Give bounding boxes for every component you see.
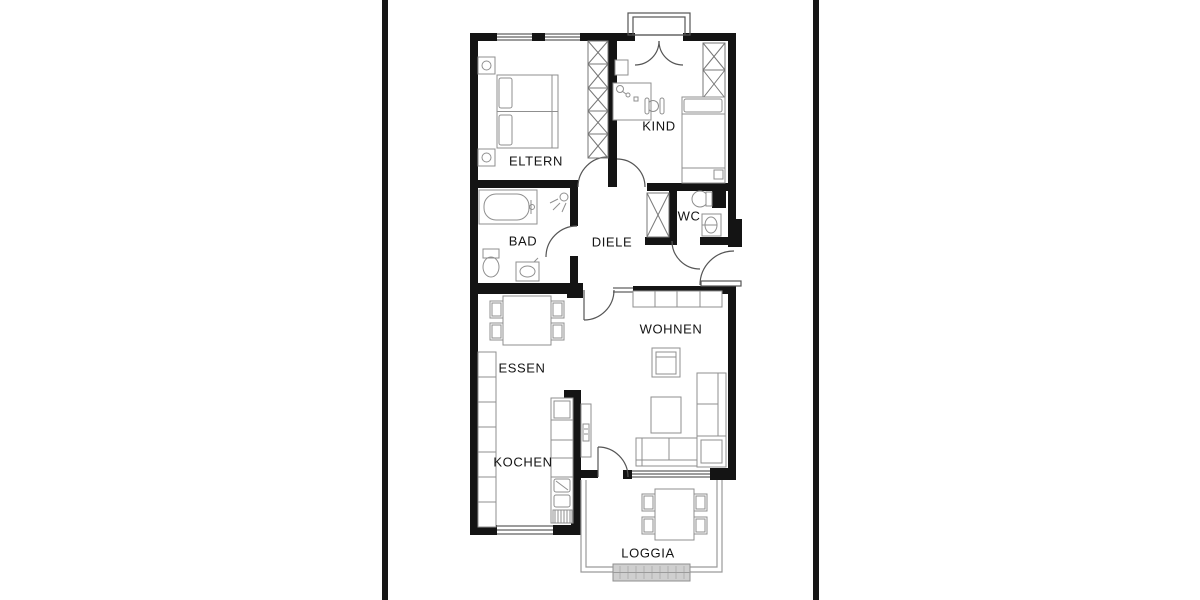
window-kochen [497,526,553,534]
shower-head-symbol [550,193,568,212]
sideboard [633,291,722,307]
room-label-diele: DIELE [592,235,633,250]
bathtub [479,190,537,224]
wall-glass-panel-diele [613,288,633,292]
sink-wc [702,214,721,236]
door-arc-wc [672,241,700,269]
room-label-kind: KIND [642,119,675,134]
entrance-niche-inner [633,17,685,35]
room-label-loggia: LOGGIA [621,546,674,561]
loggia-doormat [613,564,690,581]
nightstand-top [478,57,495,74]
room-label-wc: WC [678,209,701,224]
room-label-essen: ESSEN [498,361,545,376]
tv-cabinet [652,348,680,377]
door-arc-kind [617,159,645,187]
sink-bad [516,258,539,281]
wardrobe-kind [703,43,725,98]
entrance-niche-outer [628,13,690,35]
room-label-wohnen: WOHNEN [640,322,703,337]
room-label-eltern: ELTERN [509,154,563,169]
kind-cabinet [615,60,628,75]
french-door-right-arc [659,41,683,65]
door-arc-eltern [578,157,608,187]
loggia-table-set [642,489,707,540]
room-label-bad: BAD [509,234,538,249]
toilet-bad [483,249,499,277]
coffee-table [651,397,681,433]
door-leaf-entrance [701,281,741,286]
door-arc-bad [546,226,577,257]
wall-shelf-heater [581,404,591,457]
closet-diele [647,193,669,237]
window-wohnen-loggia [632,471,710,477]
french-door-left-arc [635,41,659,65]
double-bed [497,75,558,148]
room-label-kochen: KOCHEN [493,455,552,470]
duct-shaft [712,191,726,208]
nightstand-bottom [478,149,495,166]
kitchen-counter-left [478,352,496,527]
door-arc-diele-wohnen [584,290,614,320]
door-arc-entrance [700,251,734,285]
desk-chair [645,98,664,114]
toilet-wc [692,191,712,207]
kind-bed [682,97,725,183]
screenshot-root: ELTERN KIND BAD DIELE WC ESSEN WOHNEN KO… [0,0,1200,600]
window-eltern-2 [545,34,580,40]
dining-table [490,296,564,345]
wardrobe-eltern [588,41,608,158]
window-eltern-1 [497,34,532,40]
floor-plan-drawing [0,0,1200,600]
